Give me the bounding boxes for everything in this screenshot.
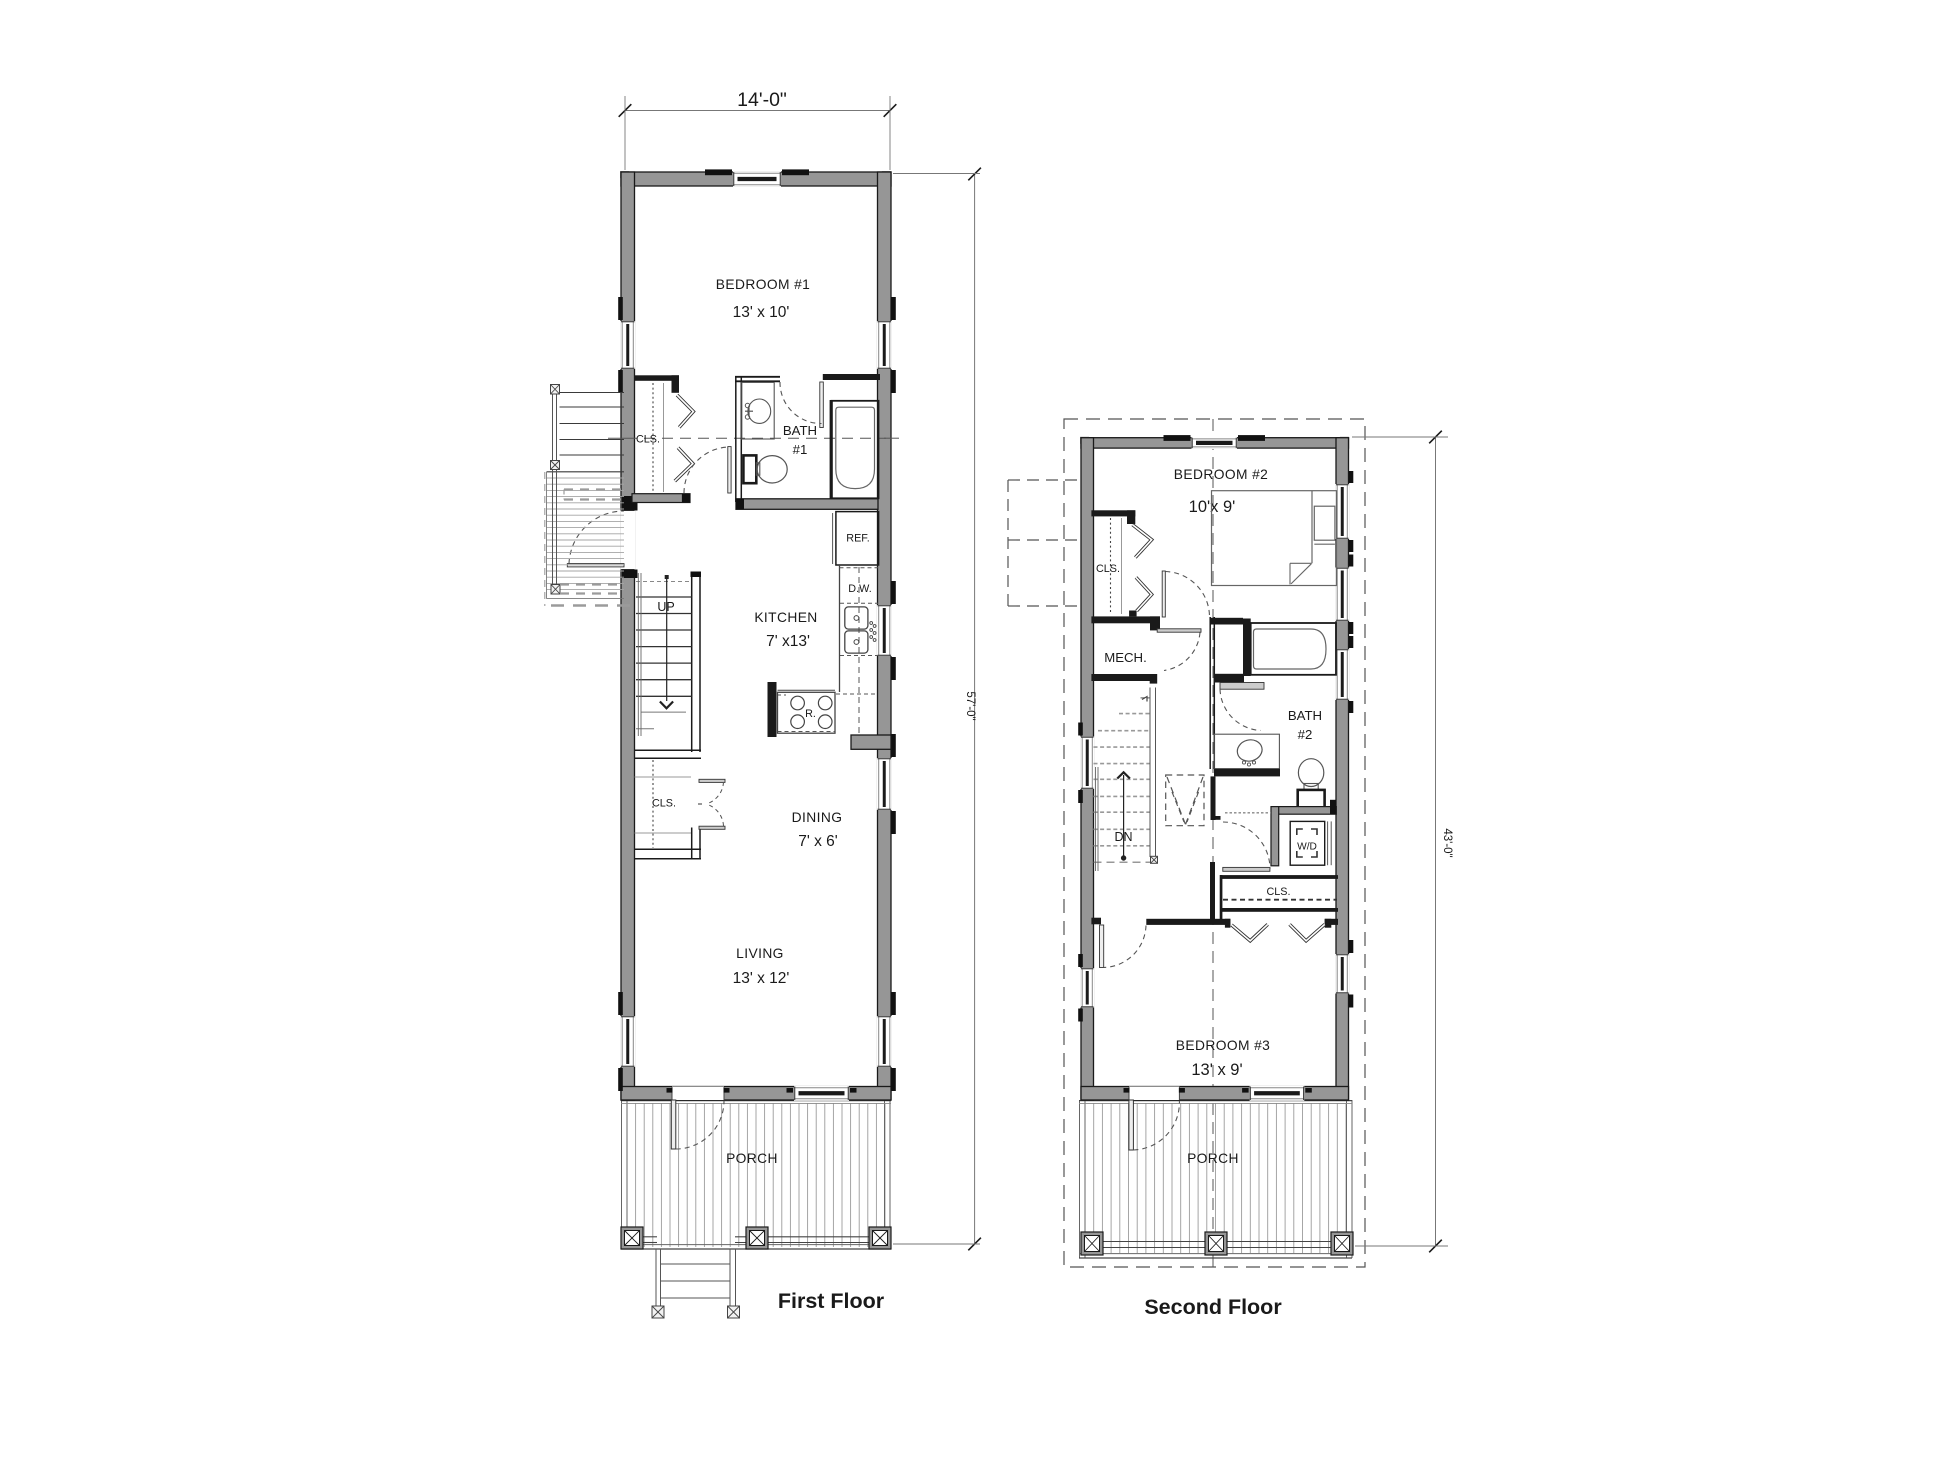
svg-text:#2: #2 [1298,727,1313,742]
svg-text:13' x 10': 13' x 10' [733,304,790,321]
svg-text:UP: UP [657,600,674,614]
svg-text:#1: #1 [793,442,808,457]
svg-text:MECH.: MECH. [1104,650,1147,665]
svg-text:REF.: REF. [846,533,869,545]
svg-text:PORCH: PORCH [1187,1151,1239,1166]
svg-text:KITCHEN: KITCHEN [754,610,817,625]
svg-text:CLS.: CLS. [652,798,676,810]
svg-text:DN: DN [1114,830,1132,844]
svg-text:57'-0": 57'-0" [964,691,976,720]
svg-text:CLS.: CLS. [636,434,660,446]
svg-text:BEDROOM #1: BEDROOM #1 [716,277,810,292]
svg-text:LIVING: LIVING [736,946,784,961]
svg-text:CLS.: CLS. [1096,563,1120,575]
svg-text:13' x 12': 13' x 12' [733,970,790,987]
svg-text:7' x13': 7' x13' [766,633,810,650]
svg-text:14'-0": 14'-0" [737,89,787,111]
svg-text:13' x 9': 13' x 9' [1191,1061,1242,1079]
svg-text:43'-0": 43'-0" [1441,828,1453,857]
svg-text:DINING: DINING [792,810,843,825]
svg-text:7' x 6': 7' x 6' [798,833,838,850]
svg-text:CLS.: CLS. [1266,886,1290,898]
svg-text:W/D: W/D [1297,842,1317,853]
svg-text:BATH: BATH [1288,708,1322,723]
svg-text:BEDROOM #2: BEDROOM #2 [1174,467,1268,482]
svg-text:R.: R. [805,708,816,720]
svg-text:PORCH: PORCH [726,1151,778,1166]
svg-text:Second Floor: Second Floor [1144,1295,1282,1319]
svg-text:BEDROOM #3: BEDROOM #3 [1176,1038,1270,1053]
svg-text:BATH: BATH [783,423,817,438]
svg-text:D.W.: D.W. [848,583,871,595]
svg-text:First Floor: First Floor [778,1289,885,1313]
